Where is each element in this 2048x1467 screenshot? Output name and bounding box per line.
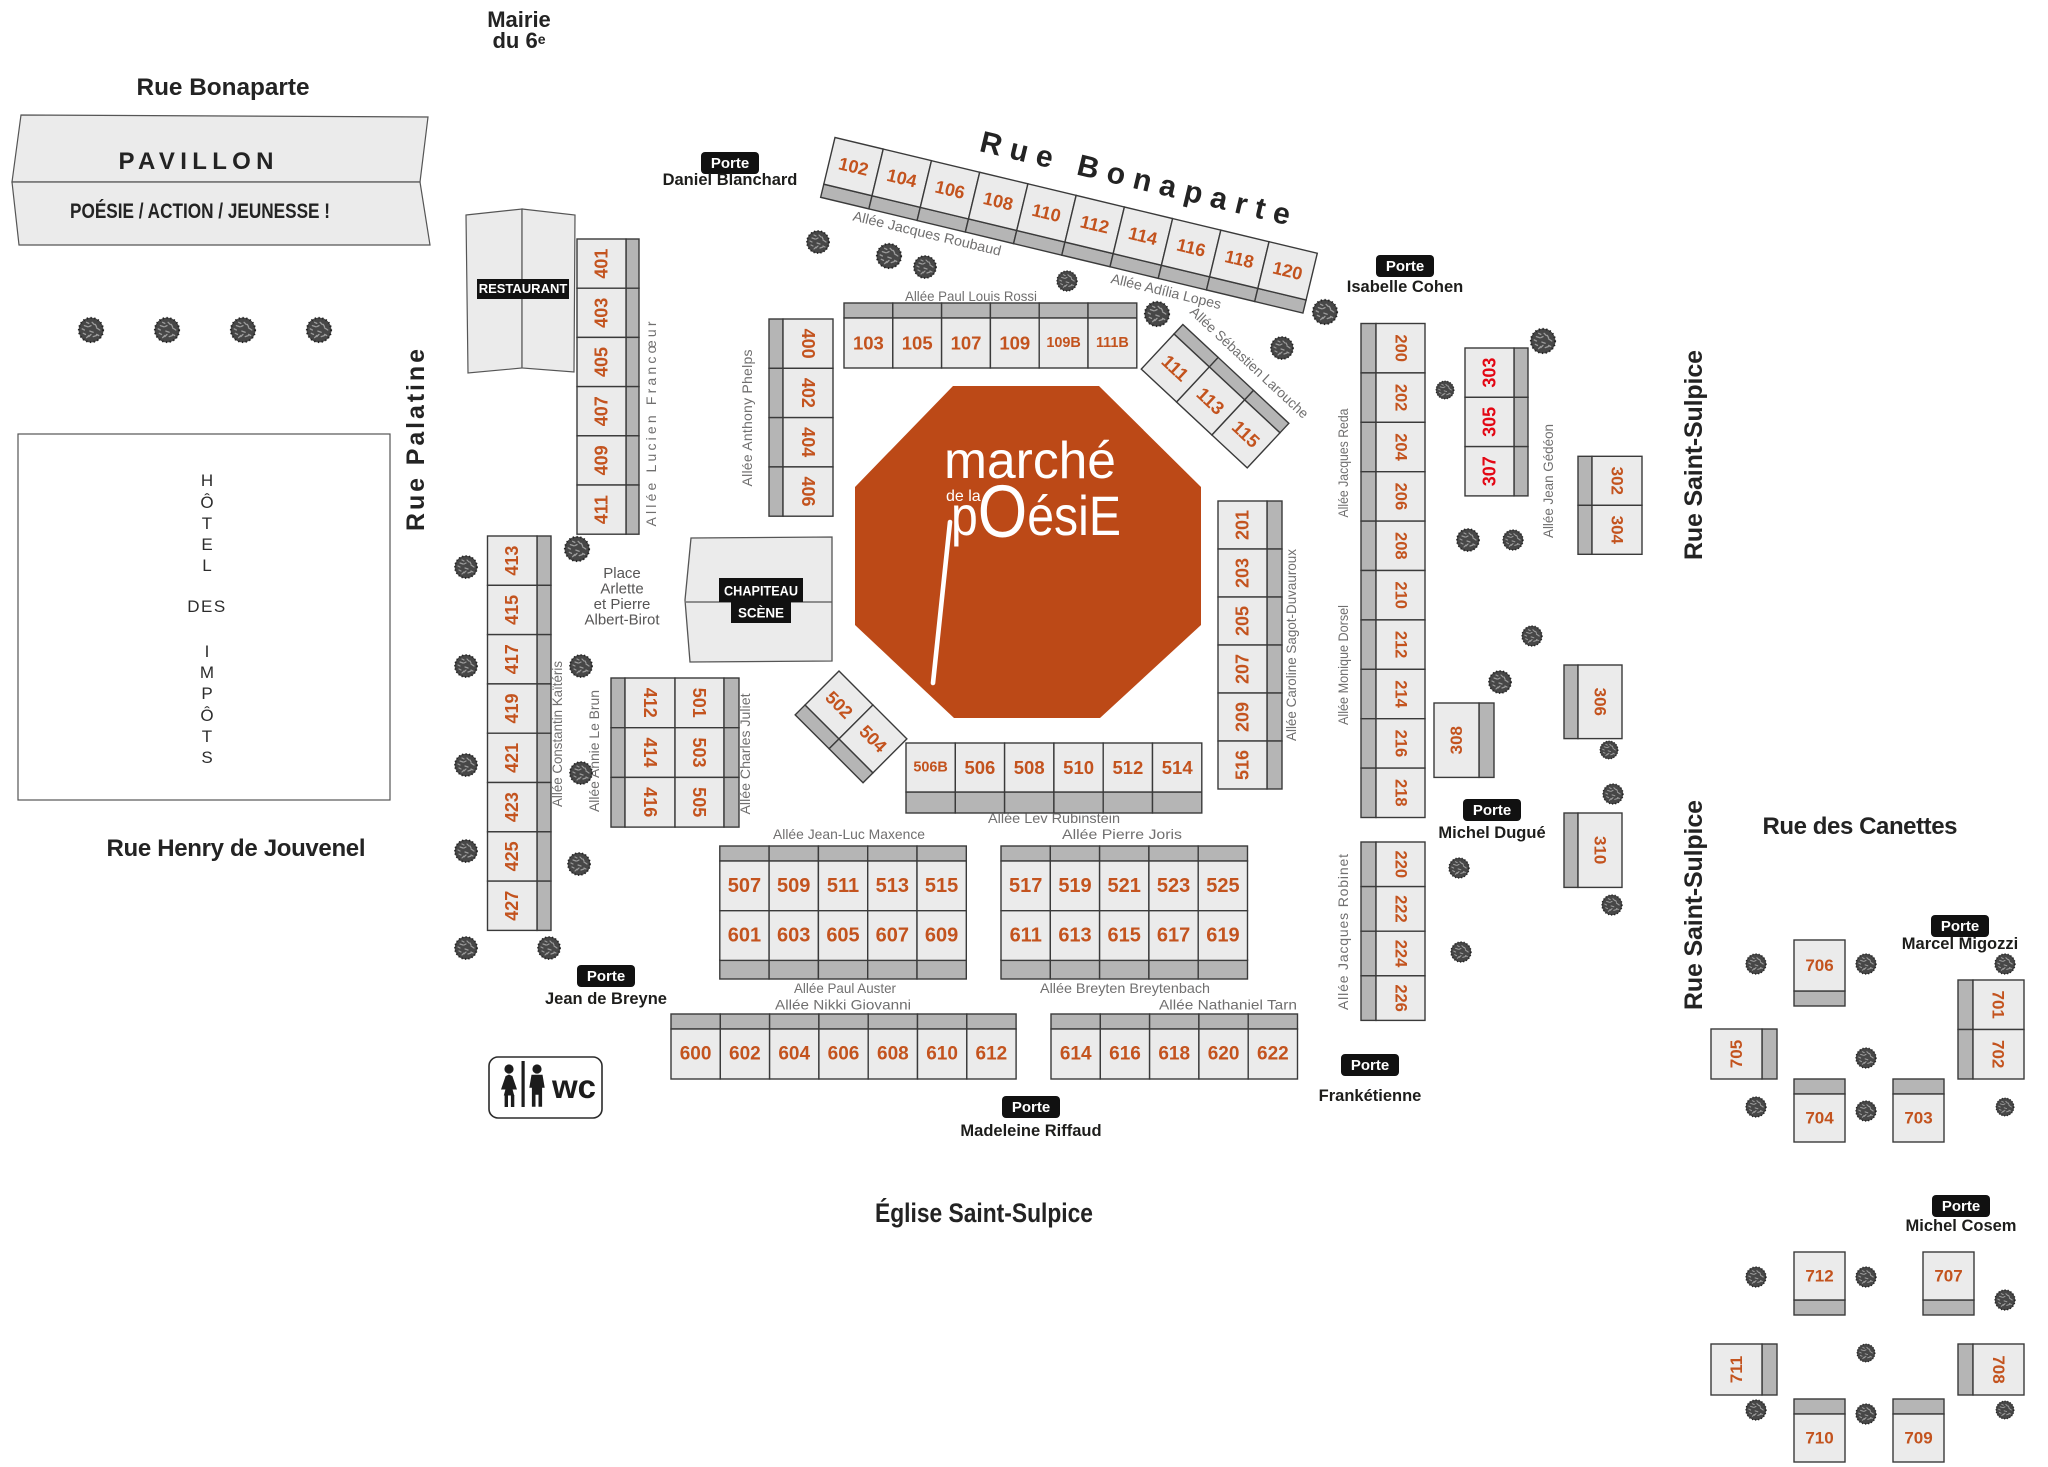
svg-text:105: 105 — [902, 333, 933, 354]
svg-text:705: 705 — [1727, 1040, 1746, 1068]
svg-text:613: 613 — [1058, 925, 1091, 947]
svg-text:402: 402 — [798, 378, 818, 408]
svg-text:Allée Charles Juliet: Allée Charles Juliet — [737, 693, 753, 814]
svg-text:202: 202 — [1392, 384, 1410, 412]
svg-text:304: 304 — [1608, 516, 1627, 545]
svg-text:612: 612 — [976, 1044, 1008, 1065]
svg-text:Église Saint-Sulpice: Église Saint-Sulpice — [875, 1197, 1093, 1228]
svg-text:Porte: Porte — [1012, 1099, 1050, 1116]
svg-text:415: 415 — [502, 595, 522, 625]
svg-text:608: 608 — [877, 1044, 909, 1065]
svg-text:M: M — [200, 663, 214, 682]
svg-text:506B: 506B — [913, 760, 947, 776]
svg-text:Allée Lucien Francœur: Allée Lucien Francœur — [643, 321, 659, 526]
svg-text:Isabelle Cohen: Isabelle Cohen — [1347, 278, 1463, 296]
svg-text:411: 411 — [592, 495, 612, 524]
svg-text:403: 403 — [592, 298, 612, 328]
svg-text:401: 401 — [592, 249, 612, 279]
svg-text:310: 310 — [1591, 836, 1610, 864]
svg-text:RESTAURANT: RESTAURANT — [479, 281, 568, 296]
svg-text:216: 216 — [1392, 730, 1410, 758]
svg-text:Allée Jean-Luc Maxence: Allée Jean-Luc Maxence — [773, 826, 925, 842]
svg-text:103: 103 — [853, 333, 884, 354]
svg-text:507: 507 — [728, 875, 761, 897]
svg-text:Frankétienne: Frankétienne — [1319, 1087, 1422, 1105]
svg-text:607: 607 — [876, 925, 909, 947]
svg-text:427: 427 — [502, 891, 522, 921]
svg-text:510: 510 — [1063, 757, 1094, 778]
svg-text:517: 517 — [1009, 875, 1042, 897]
svg-text:501: 501 — [689, 688, 709, 718]
svg-text:Allée Paul Auster: Allée Paul Auster — [794, 980, 896, 996]
svg-text:POÉSIE / ACTION / JEUNESSE !: POÉSIE / ACTION / JEUNESSE ! — [70, 200, 330, 223]
svg-text:Allée Jean Gédéon: Allée Jean Gédéon — [1540, 424, 1556, 538]
svg-text:201: 201 — [1233, 510, 1253, 540]
svg-text:622: 622 — [1257, 1044, 1289, 1065]
svg-text:425: 425 — [502, 841, 522, 871]
svg-text:Allée Annie Le Brun: Allée Annie Le Brun — [586, 690, 602, 812]
svg-text:Rue Saint-Sulpice: Rue Saint-Sulpice — [1680, 800, 1708, 1010]
svg-text:I: I — [205, 642, 210, 661]
svg-text:DES: DES — [187, 597, 226, 616]
svg-text:224: 224 — [1392, 940, 1410, 968]
svg-text:200: 200 — [1392, 334, 1410, 362]
svg-text:P: P — [201, 684, 212, 703]
svg-text:511: 511 — [827, 875, 859, 897]
svg-text:109: 109 — [999, 333, 1030, 354]
svg-text:marché: marché — [944, 432, 1116, 490]
svg-text:618: 618 — [1158, 1044, 1190, 1065]
svg-text:512: 512 — [1112, 757, 1143, 778]
svg-text:Rue Bonaparte: Rue Bonaparte — [137, 74, 310, 101]
svg-text:707: 707 — [1934, 1267, 1962, 1286]
svg-text:Allée Paul Louis Rossi: Allée Paul Louis Rossi — [905, 288, 1037, 304]
svg-text:525: 525 — [1206, 875, 1239, 897]
svg-text:421: 421 — [502, 743, 522, 773]
svg-text:619: 619 — [1206, 925, 1239, 947]
svg-text:109B: 109B — [1046, 335, 1080, 351]
svg-text:Porte: Porte — [1941, 918, 1979, 935]
svg-text:Porte: Porte — [1942, 1198, 1980, 1215]
svg-text:515: 515 — [925, 875, 958, 897]
svg-text:206: 206 — [1392, 483, 1410, 511]
svg-text:207: 207 — [1233, 654, 1253, 684]
svg-text:711: 711 — [1727, 1356, 1746, 1383]
svg-text:519: 519 — [1058, 875, 1091, 897]
svg-text:413: 413 — [502, 546, 522, 576]
svg-text:503: 503 — [689, 737, 709, 767]
svg-text:Ô: Ô — [200, 706, 213, 725]
svg-text:406: 406 — [798, 476, 818, 506]
svg-text:H: H — [201, 471, 213, 490]
svg-text:417: 417 — [502, 644, 522, 674]
svg-text:Rue des Canettes: Rue des Canettes — [1763, 813, 1958, 840]
svg-text:712: 712 — [1805, 1267, 1833, 1286]
svg-text:Allée Jacques Reda: Allée Jacques Reda — [1335, 408, 1351, 517]
svg-text:514: 514 — [1162, 757, 1194, 778]
svg-text:306: 306 — [1591, 688, 1610, 716]
svg-text:Allée Lev Rubinstein: Allée Lev Rubinstein — [988, 810, 1120, 826]
svg-text:603: 603 — [777, 925, 810, 947]
svg-text:222: 222 — [1392, 895, 1410, 923]
svg-text:Rue Saint-Sulpice: Rue Saint-Sulpice — [1680, 350, 1708, 560]
svg-text:509: 509 — [777, 875, 810, 897]
svg-text:SCÈNE: SCÈNE — [738, 606, 784, 621]
svg-text:609: 609 — [925, 925, 958, 947]
svg-text:610: 610 — [926, 1044, 958, 1065]
svg-text:226: 226 — [1392, 984, 1410, 1012]
svg-text:506: 506 — [964, 757, 995, 778]
svg-text:523: 523 — [1157, 875, 1190, 897]
svg-text:Allée Nikki Giovanni: Allée Nikki Giovanni — [775, 997, 911, 1013]
svg-text:614: 614 — [1060, 1044, 1092, 1065]
svg-text:617: 617 — [1157, 925, 1190, 947]
svg-text:606: 606 — [828, 1044, 860, 1065]
svg-text:308: 308 — [1447, 726, 1466, 754]
svg-text:Allée Breyten Breytenbach: Allée Breyten Breytenbach — [1040, 980, 1210, 996]
svg-text:220: 220 — [1392, 851, 1410, 879]
svg-text:302: 302 — [1608, 467, 1627, 495]
svg-text:PAVILLON: PAVILLON — [119, 148, 274, 175]
svg-text:107: 107 — [951, 333, 982, 354]
svg-text:508: 508 — [1014, 757, 1045, 778]
svg-text:412: 412 — [640, 688, 660, 718]
svg-text:T: T — [202, 514, 212, 533]
svg-text:405: 405 — [592, 347, 612, 377]
svg-text:wc: wc — [551, 1068, 596, 1105]
svg-text:704: 704 — [1805, 1109, 1834, 1128]
svg-text:Allée Constantin Kaïtéris: Allée Constantin Kaïtéris — [549, 661, 565, 807]
svg-text:111B: 111B — [1096, 335, 1129, 351]
svg-text:Allée Jacques Robinet: Allée Jacques Robinet — [1335, 854, 1351, 1010]
svg-text:T: T — [202, 727, 212, 746]
svg-text:423: 423 — [502, 792, 522, 822]
svg-text:404: 404 — [798, 427, 818, 457]
svg-text:Ô: Ô — [200, 493, 213, 512]
svg-text:414: 414 — [640, 737, 660, 767]
svg-text:710: 710 — [1805, 1429, 1833, 1448]
svg-text:611: 611 — [1010, 925, 1042, 947]
svg-text:602: 602 — [729, 1044, 761, 1065]
svg-text:214: 214 — [1392, 680, 1410, 708]
svg-text:Michel Dugué: Michel Dugué — [1438, 824, 1545, 842]
svg-text:600: 600 — [680, 1044, 712, 1065]
svg-text:702: 702 — [1989, 1040, 2008, 1068]
svg-text:Rue Palatine: Rue Palatine — [402, 349, 430, 531]
svg-text:615: 615 — [1108, 925, 1141, 947]
svg-text:Madeleine Riffaud: Madeleine Riffaud — [960, 1122, 1101, 1140]
svg-text:604: 604 — [778, 1044, 810, 1065]
svg-text:Porte: Porte — [587, 968, 625, 985]
svg-text:709: 709 — [1904, 1429, 1932, 1448]
svg-text:Porte: Porte — [1351, 1057, 1389, 1074]
svg-text:Jean de Breyne: Jean de Breyne — [545, 990, 667, 1008]
svg-text:Michel Cosem: Michel Cosem — [1906, 1217, 2017, 1235]
svg-text:701: 701 — [1989, 991, 2008, 1019]
svg-text:Porte: Porte — [1473, 802, 1511, 819]
svg-text:210: 210 — [1392, 581, 1410, 609]
svg-text:208: 208 — [1392, 532, 1410, 560]
svg-text:Arlette: Arlette — [600, 581, 643, 598]
svg-text:620: 620 — [1208, 1044, 1240, 1065]
svg-text:E: E — [201, 535, 212, 554]
svg-text:204: 204 — [1392, 433, 1410, 461]
svg-text:Allée Nathaniel Tarn: Allée Nathaniel Tarn — [1159, 997, 1297, 1013]
svg-text:218: 218 — [1392, 779, 1410, 807]
svg-text:Albert-Birot: Albert-Birot — [584, 612, 660, 629]
svg-text:400: 400 — [798, 329, 818, 359]
svg-text:516: 516 — [1233, 750, 1253, 780]
svg-text:303: 303 — [1480, 358, 1500, 388]
svg-text:305: 305 — [1480, 407, 1500, 437]
svg-text:706: 706 — [1805, 956, 1833, 975]
svg-text:Rue Henry de Jouvenel: Rue Henry de Jouvenel — [107, 835, 366, 862]
svg-text:Allée Pierre Joris: Allée Pierre Joris — [1062, 826, 1182, 842]
svg-text:708: 708 — [1989, 1355, 2008, 1383]
svg-text:416: 416 — [640, 787, 660, 817]
svg-text:Place: Place — [603, 565, 641, 582]
svg-text:513: 513 — [876, 875, 909, 897]
svg-text:505: 505 — [689, 787, 709, 817]
svg-text:407: 407 — [592, 396, 612, 426]
svg-text:Porte: Porte — [711, 155, 749, 172]
svg-text:205: 205 — [1233, 606, 1253, 636]
svg-text:S: S — [201, 748, 212, 767]
svg-text:419: 419 — [502, 693, 522, 723]
svg-text:Porte: Porte — [1386, 258, 1424, 275]
svg-text:203: 203 — [1233, 558, 1253, 588]
svg-text:605: 605 — [826, 925, 859, 947]
svg-text:307: 307 — [1480, 456, 1500, 486]
svg-text:Daniel Blanchard: Daniel Blanchard — [663, 171, 798, 189]
svg-text:521: 521 — [1108, 875, 1141, 897]
svg-text:703: 703 — [1904, 1109, 1932, 1128]
svg-text:209: 209 — [1233, 702, 1253, 732]
svg-text:Allée Monique Dorsel: Allée Monique Dorsel — [1335, 605, 1351, 725]
svg-text:616: 616 — [1109, 1044, 1141, 1065]
svg-text:Allée Anthony Phelps: Allée Anthony Phelps — [739, 350, 755, 487]
svg-text:et Pierre: et Pierre — [594, 596, 651, 613]
svg-text:Allée Caroline Sagot-Duvauroux: Allée Caroline Sagot-Duvauroux — [1283, 549, 1299, 741]
svg-text:Marcel Migozzi: Marcel Migozzi — [1902, 935, 2018, 953]
svg-text:212: 212 — [1392, 631, 1410, 659]
svg-text:CHAPITEAU: CHAPITEAU — [724, 584, 798, 599]
svg-text:409: 409 — [592, 445, 612, 475]
svg-text:601: 601 — [728, 925, 761, 947]
svg-text:L: L — [202, 556, 211, 575]
